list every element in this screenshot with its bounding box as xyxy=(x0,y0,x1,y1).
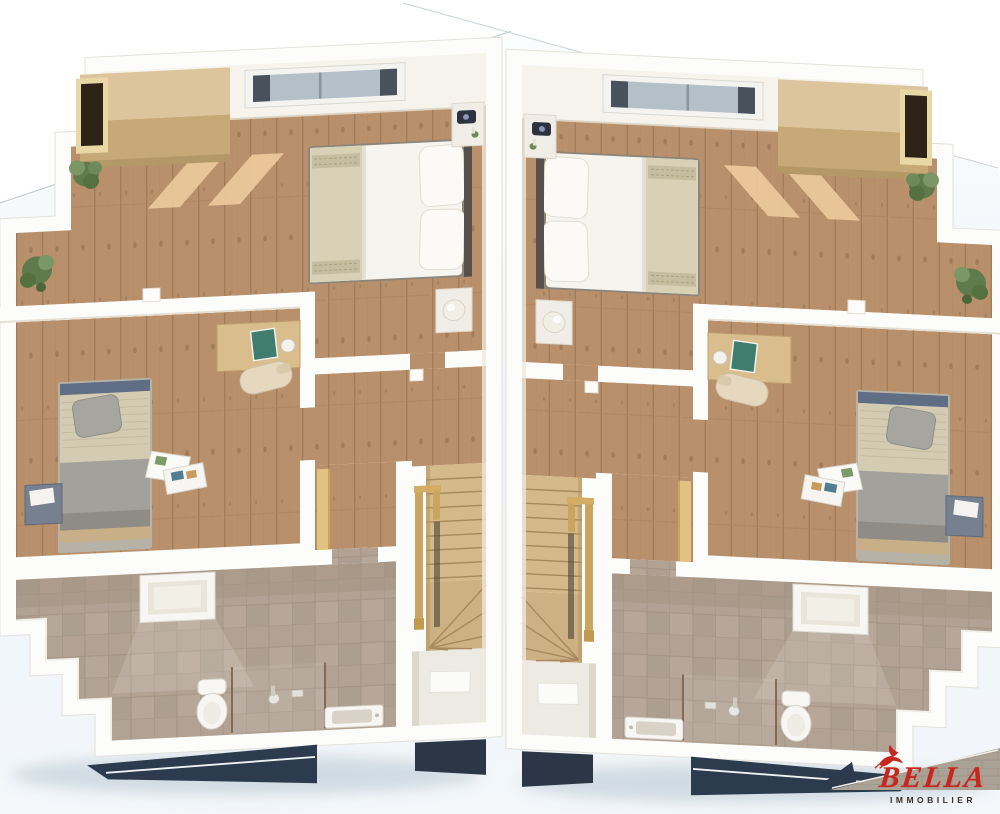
unit-left xyxy=(0,37,502,799)
floorplan-stage: BELLA IMMOBILIER xyxy=(0,0,1000,814)
brand-name: BELLA xyxy=(872,763,993,793)
unit-right xyxy=(506,49,1000,811)
floorplan-render xyxy=(0,0,1000,814)
brand-logo: BELLA IMMOBILIER xyxy=(874,763,992,805)
brand-tagline: IMMOBILIER xyxy=(874,796,992,805)
